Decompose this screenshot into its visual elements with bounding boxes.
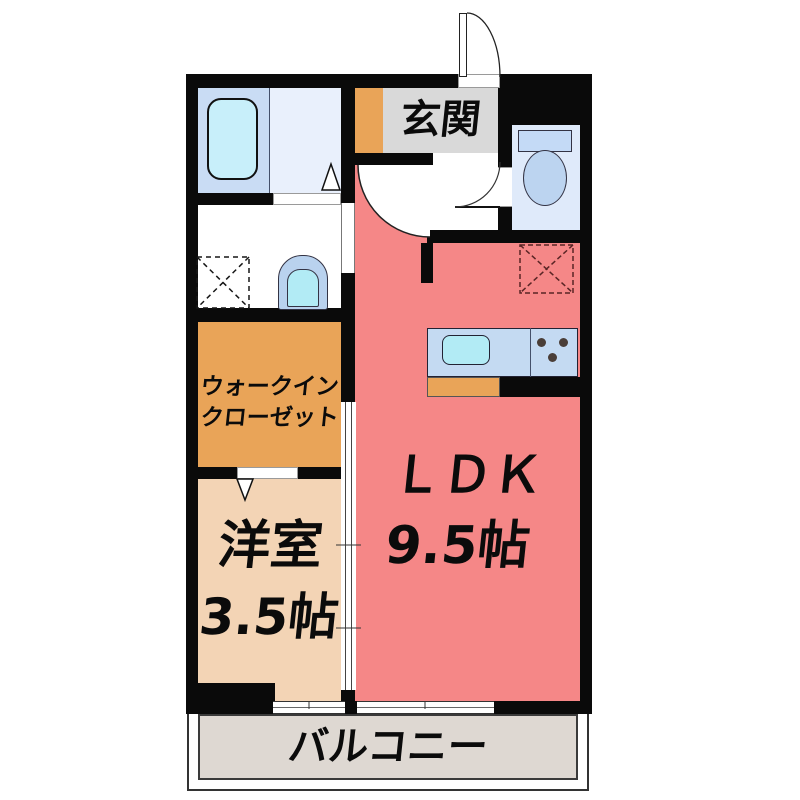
wall-kitchen-base xyxy=(500,377,580,397)
toilet-bowl xyxy=(523,150,567,206)
stove-burner-1 xyxy=(537,338,546,347)
wall-center-upper xyxy=(341,74,355,203)
western-room-name-label: 洋室 xyxy=(195,520,345,572)
washbasin-bowl xyxy=(287,269,319,307)
wall-toilet-left-upper xyxy=(498,125,512,167)
wall-center-mid xyxy=(341,273,355,402)
bath-divider-line xyxy=(269,88,270,193)
balcony-label: バルコニー xyxy=(196,727,580,767)
toilet-door-opening xyxy=(498,167,512,207)
counter-divider xyxy=(530,328,531,377)
ldk-window xyxy=(357,701,494,714)
wall-right xyxy=(580,125,592,714)
wall-bottom-chunk xyxy=(186,683,275,714)
entrance-door-leaf xyxy=(459,13,467,77)
shower-area-floor xyxy=(270,88,343,193)
wall-genkan-bottom xyxy=(341,153,433,165)
genkan-label: 玄関 xyxy=(381,100,500,140)
wall-bottom-right xyxy=(494,701,592,714)
ldk-size-label: 9.5帖 xyxy=(342,520,572,572)
wall-toilet-left-lower xyxy=(498,207,512,243)
bathroom-door xyxy=(273,193,341,205)
wall-stub xyxy=(421,243,433,283)
toilet-tank xyxy=(518,130,572,152)
kitchen-sink xyxy=(442,335,490,365)
wall-corner-block xyxy=(498,74,592,125)
stove-burner-2 xyxy=(559,338,568,347)
wall-washroom-bottom xyxy=(198,308,341,322)
wic-door xyxy=(237,467,298,479)
ldk-name-label: ＬＤＫ xyxy=(352,450,582,500)
wic-label-line1: ウォークイン xyxy=(197,376,342,399)
stove-burner-3 xyxy=(548,353,557,362)
wic-label-line2: クローゼット xyxy=(197,407,342,430)
kitchen-cabinet xyxy=(427,377,500,397)
washroom-ldk-door xyxy=(341,203,355,273)
shoe-cabinet xyxy=(353,87,383,153)
wall-top-left xyxy=(186,74,458,88)
entrance-door-arc xyxy=(467,13,500,77)
western-room-window xyxy=(273,701,345,714)
floor-plan: 玄関 ＬＤＫ 9.5帖 洋室 3.5帖 ウォークイン クローゼット バルコニー xyxy=(0,0,800,800)
bathtub xyxy=(207,98,258,180)
western-room-size-label: 3.5帖 xyxy=(190,592,347,642)
